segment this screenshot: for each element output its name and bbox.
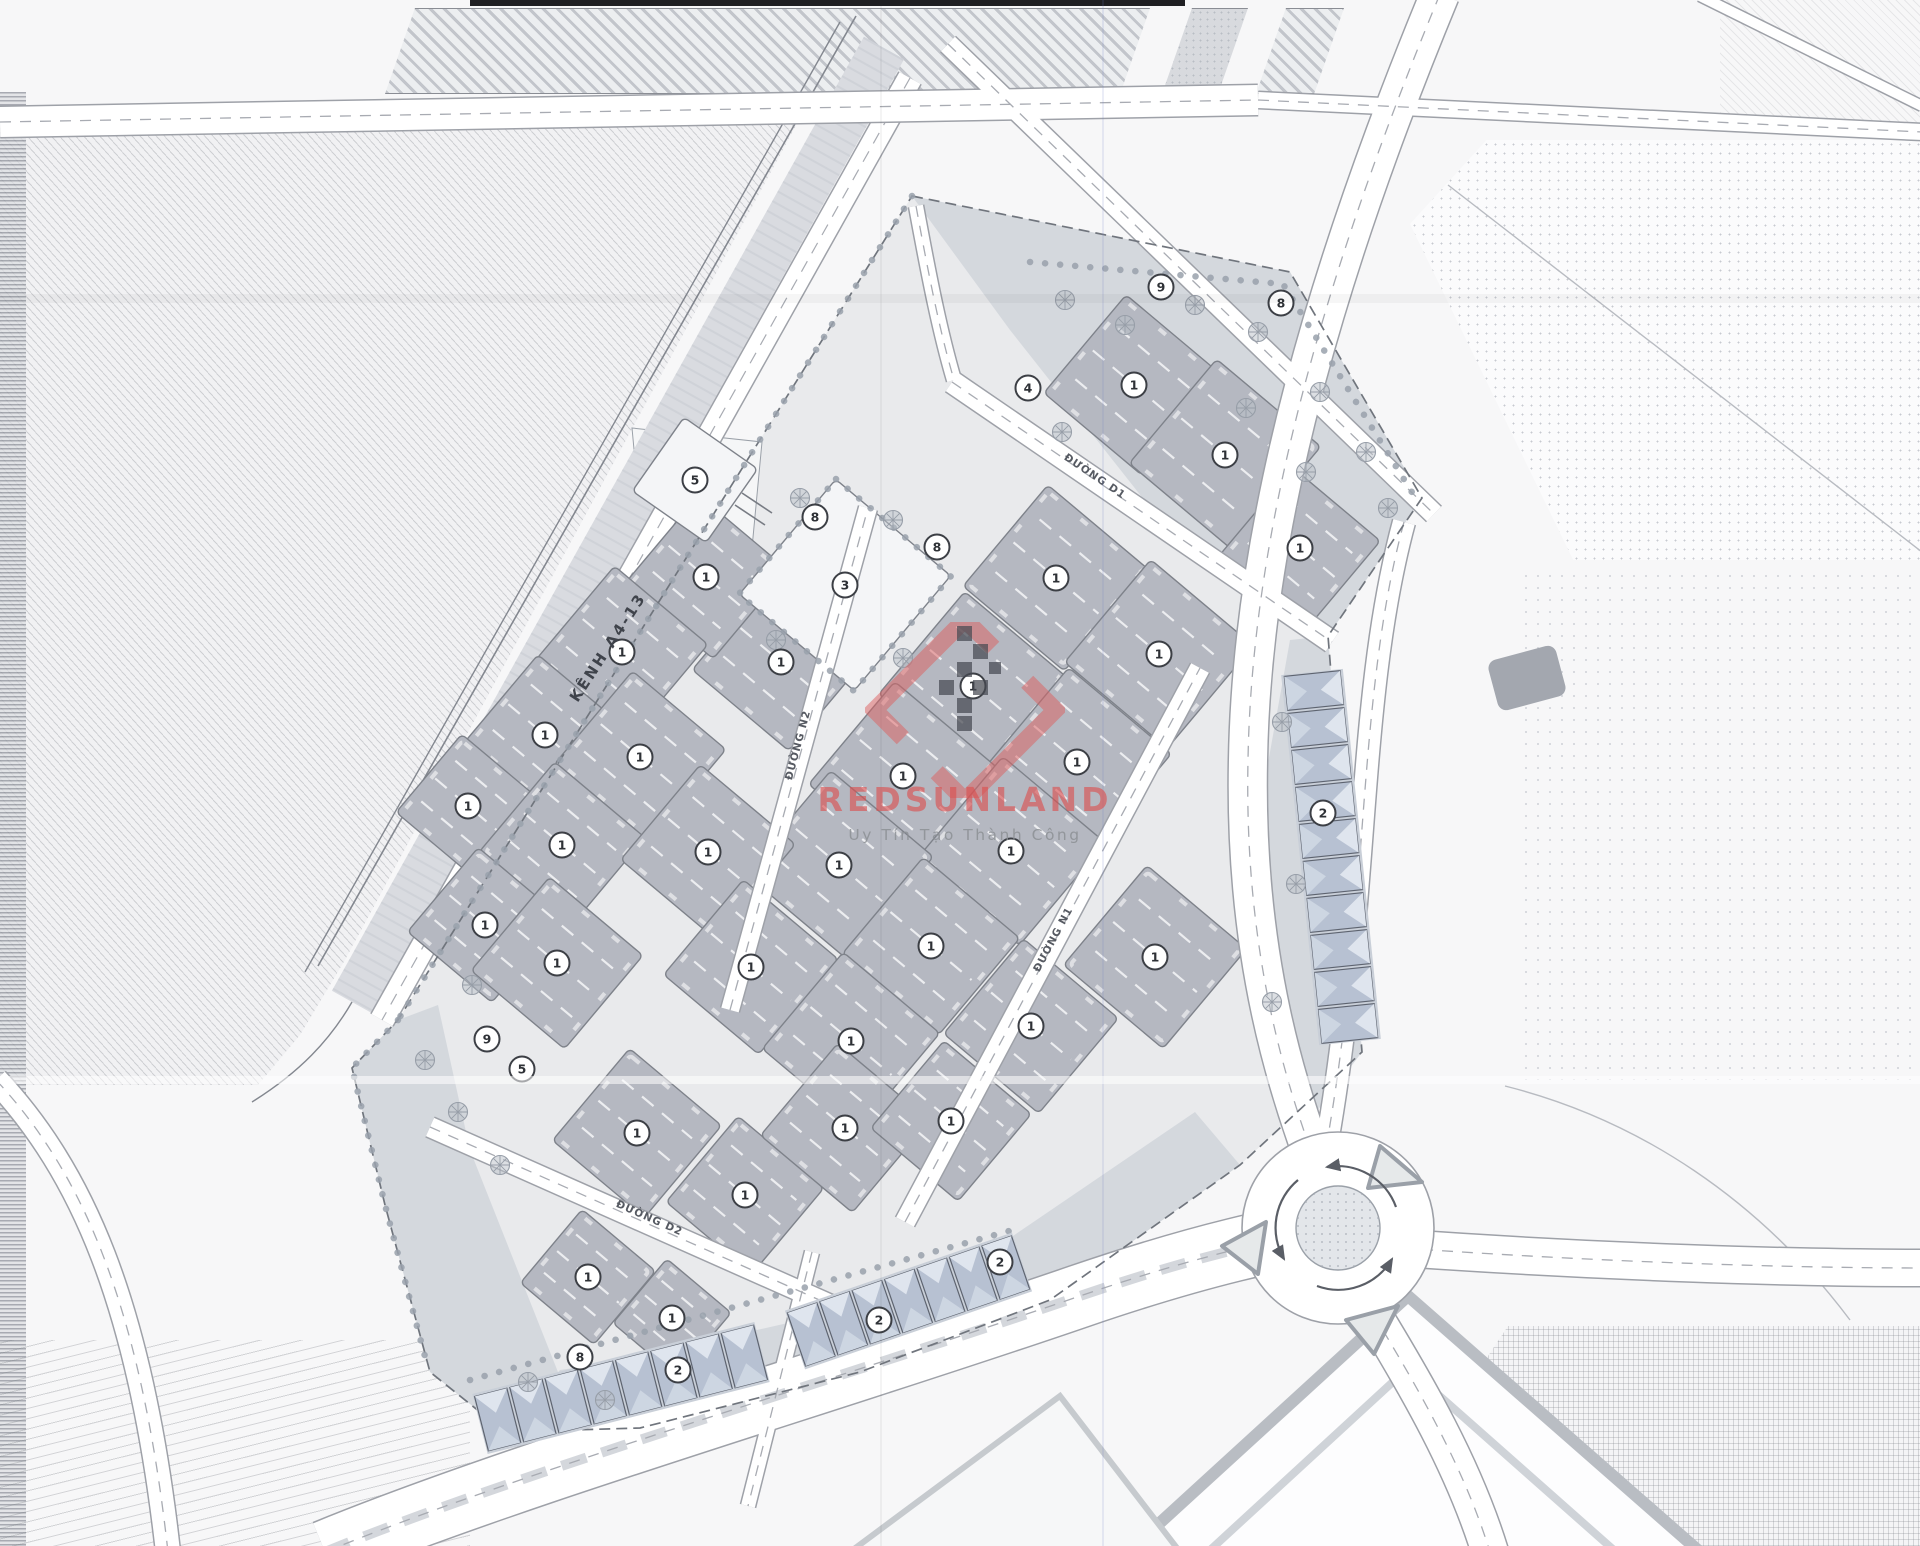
lot-number-badge: 1: [833, 1116, 858, 1141]
svg-text:1: 1: [618, 645, 627, 660]
lot-number-badge: 1: [1143, 945, 1168, 970]
svg-text:3: 3: [841, 578, 850, 593]
lot-number-badge: 2: [988, 1250, 1013, 1275]
svg-text:8: 8: [933, 540, 942, 555]
tree-icon: [884, 511, 903, 530]
svg-text:1: 1: [1007, 844, 1016, 859]
svg-text:1: 1: [841, 1121, 850, 1136]
tree-icon: [1273, 713, 1292, 732]
svg-text:1: 1: [702, 570, 711, 585]
lot-number-badge: 5: [683, 468, 708, 493]
svg-text:8: 8: [576, 1350, 585, 1365]
svg-text:1: 1: [668, 1311, 677, 1326]
lot-number-badge: 1: [1147, 642, 1172, 667]
lot-number-badge: 1: [739, 955, 764, 980]
svg-text:1: 1: [847, 1034, 856, 1049]
lot-number-badge: 1: [839, 1029, 864, 1054]
plan-linework: 1111111111111111111111111111111359848895…: [0, 0, 1920, 1546]
lot-number-badge: 1: [1019, 1014, 1044, 1039]
svg-text:2: 2: [996, 1255, 1005, 1270]
lot-number-badge: 1: [1122, 373, 1147, 398]
fold-line: [880, 0, 882, 1546]
svg-text:1: 1: [1052, 571, 1061, 586]
svg-text:5: 5: [691, 473, 700, 488]
lot-number-badge: 1: [545, 951, 570, 976]
tree-icon: [1287, 875, 1306, 894]
tree-icon: [596, 1391, 615, 1410]
tree-icon: [1263, 993, 1282, 1012]
svg-text:1: 1: [464, 799, 473, 814]
lot-number-badge: 1: [550, 833, 575, 858]
svg-text:5: 5: [518, 1062, 527, 1077]
tree-icon: [791, 489, 810, 508]
svg-text:1: 1: [584, 1270, 593, 1285]
lot-number-badge: 2: [1311, 801, 1336, 826]
tree-icon: [519, 1373, 538, 1392]
svg-text:1: 1: [633, 1126, 642, 1141]
svg-text:1: 1: [1027, 1019, 1036, 1034]
lot-number-badge: 9: [475, 1027, 500, 1052]
rowhouse-unit: [1307, 893, 1366, 933]
svg-text:1: 1: [899, 769, 908, 784]
svg-text:1: 1: [553, 956, 562, 971]
svg-text:1: 1: [636, 750, 645, 765]
lot-number-badge: 1: [1065, 750, 1090, 775]
tree-icon: [1116, 316, 1135, 335]
rowhouse-unit: [1303, 856, 1362, 896]
lot-number-badge: 1: [628, 745, 653, 770]
svg-text:1: 1: [481, 918, 490, 933]
lot-number-badge: 8: [568, 1345, 593, 1370]
svg-text:9: 9: [483, 1032, 492, 1047]
tree-icon: [1249, 323, 1268, 342]
svg-text:2: 2: [1319, 806, 1328, 821]
rowhouse-unit: [1318, 1004, 1377, 1044]
tree-icon: [463, 976, 482, 995]
lot-number-badge: 1: [533, 723, 558, 748]
lot-number-badge: 1: [456, 794, 481, 819]
lot-number-badge: 1: [625, 1121, 650, 1146]
lot-number-badge: 3: [833, 573, 858, 598]
scan-band: [0, 1076, 1920, 1084]
svg-text:8: 8: [811, 510, 820, 525]
lot-number-badge: 8: [803, 505, 828, 530]
tree-icon: [1297, 463, 1316, 482]
fold-line: [1102, 0, 1104, 1546]
lot-number-badge: 1: [769, 650, 794, 675]
lot-number-badge: 1: [660, 1306, 685, 1331]
svg-text:2: 2: [875, 1313, 884, 1328]
rowhouse-unit: [1284, 671, 1343, 711]
tree-icon: [1357, 443, 1376, 462]
svg-text:1: 1: [947, 1114, 956, 1129]
svg-text:1: 1: [927, 939, 936, 954]
tree-icon: [449, 1103, 468, 1122]
tree-icon: [416, 1051, 435, 1070]
tree-icon: [491, 1156, 510, 1175]
svg-text:1: 1: [1221, 448, 1230, 463]
svg-text:1: 1: [777, 655, 786, 670]
tree-icon: [767, 631, 786, 650]
lot-number-badge: 1: [473, 913, 498, 938]
lot-number-badge: 1: [694, 565, 719, 590]
tree-icon: [1053, 423, 1072, 442]
tree-icon: [1237, 399, 1256, 418]
lot-number-badge: 1: [919, 934, 944, 959]
lot-number-badge: 1: [1044, 566, 1069, 591]
lot-number-badge: 2: [666, 1358, 691, 1383]
svg-text:1: 1: [704, 845, 713, 860]
svg-text:1: 1: [969, 679, 978, 694]
svg-text:1: 1: [1130, 378, 1139, 393]
lot-number-badge: 4: [1016, 376, 1041, 401]
svg-text:1: 1: [835, 858, 844, 873]
svg-text:1: 1: [558, 838, 567, 853]
lot-number-badge: 8: [925, 535, 950, 560]
svg-text:1: 1: [1155, 647, 1164, 662]
lot-number-badge: 1: [999, 839, 1024, 864]
lot-number-badge: 2: [867, 1308, 892, 1333]
rowhouse-unit: [1315, 967, 1374, 1007]
lot-number-badge: 1: [1213, 443, 1238, 468]
lot-number-badge: 1: [1288, 536, 1313, 561]
tree-icon: [894, 649, 913, 668]
lot-number-badge: 1: [733, 1183, 758, 1208]
svg-text:1: 1: [1151, 950, 1160, 965]
master-plan-map: 1111111111111111111111111111111359848895…: [0, 0, 1920, 1546]
svg-text:4: 4: [1024, 381, 1033, 396]
svg-text:1: 1: [741, 1188, 750, 1203]
lot-number-badge: 1: [696, 840, 721, 865]
scan-band: [0, 294, 1920, 303]
svg-text:1: 1: [1073, 755, 1082, 770]
lot-number-badge: 1: [827, 853, 852, 878]
svg-text:9: 9: [1157, 280, 1166, 295]
lot-number-badge: 1: [961, 674, 986, 699]
lot-number-badge: 1: [576, 1265, 601, 1290]
lot-number-badge: 1: [939, 1109, 964, 1134]
tree-icon: [1311, 383, 1330, 402]
lot-number-badge: 1: [891, 764, 916, 789]
tree-icon: [1379, 499, 1398, 518]
rowhouse-unit: [1288, 708, 1347, 748]
svg-text:1: 1: [1296, 541, 1305, 556]
svg-text:1: 1: [747, 960, 756, 975]
rowhouse-unit: [1292, 745, 1351, 785]
rowhouse-unit: [1311, 930, 1370, 970]
svg-text:2: 2: [674, 1363, 683, 1378]
svg-text:1: 1: [541, 728, 550, 743]
